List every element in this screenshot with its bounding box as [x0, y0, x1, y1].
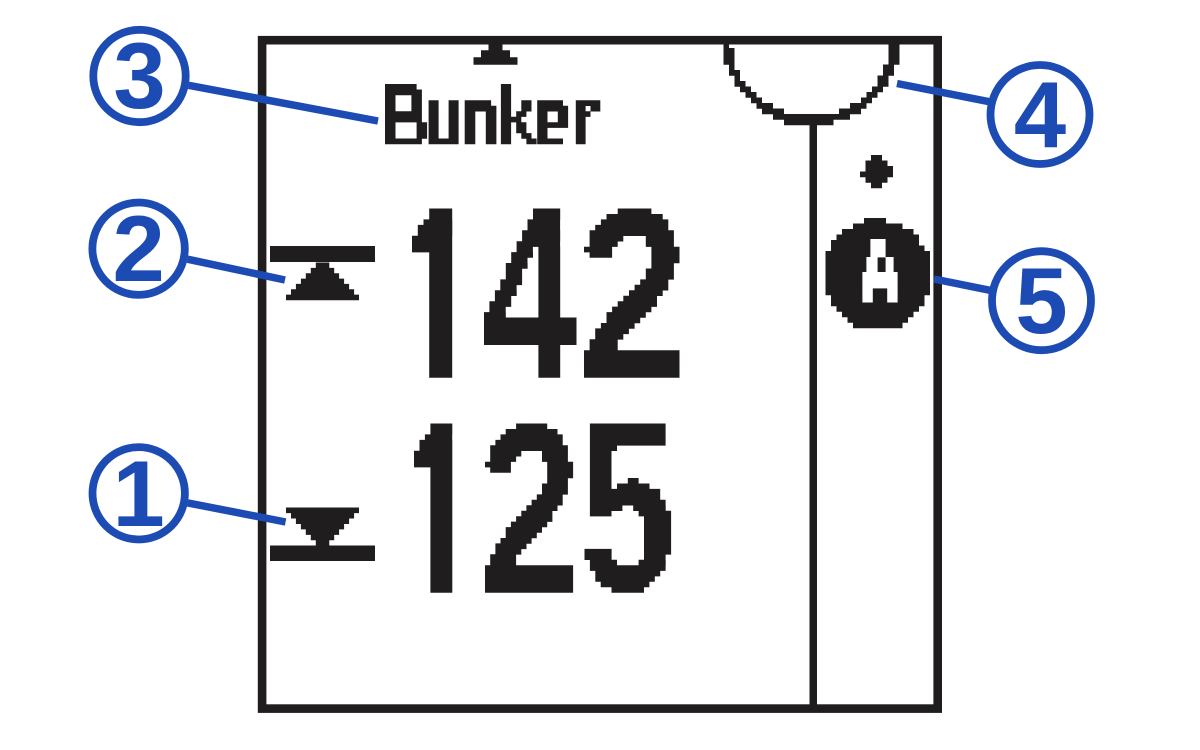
svg-text:2: 2 — [112, 196, 164, 301]
svg-text:4: 4 — [1014, 62, 1066, 167]
svg-text:5: 5 — [1015, 248, 1067, 353]
svg-text:3: 3 — [113, 23, 165, 128]
svg-text:1: 1 — [113, 441, 165, 546]
